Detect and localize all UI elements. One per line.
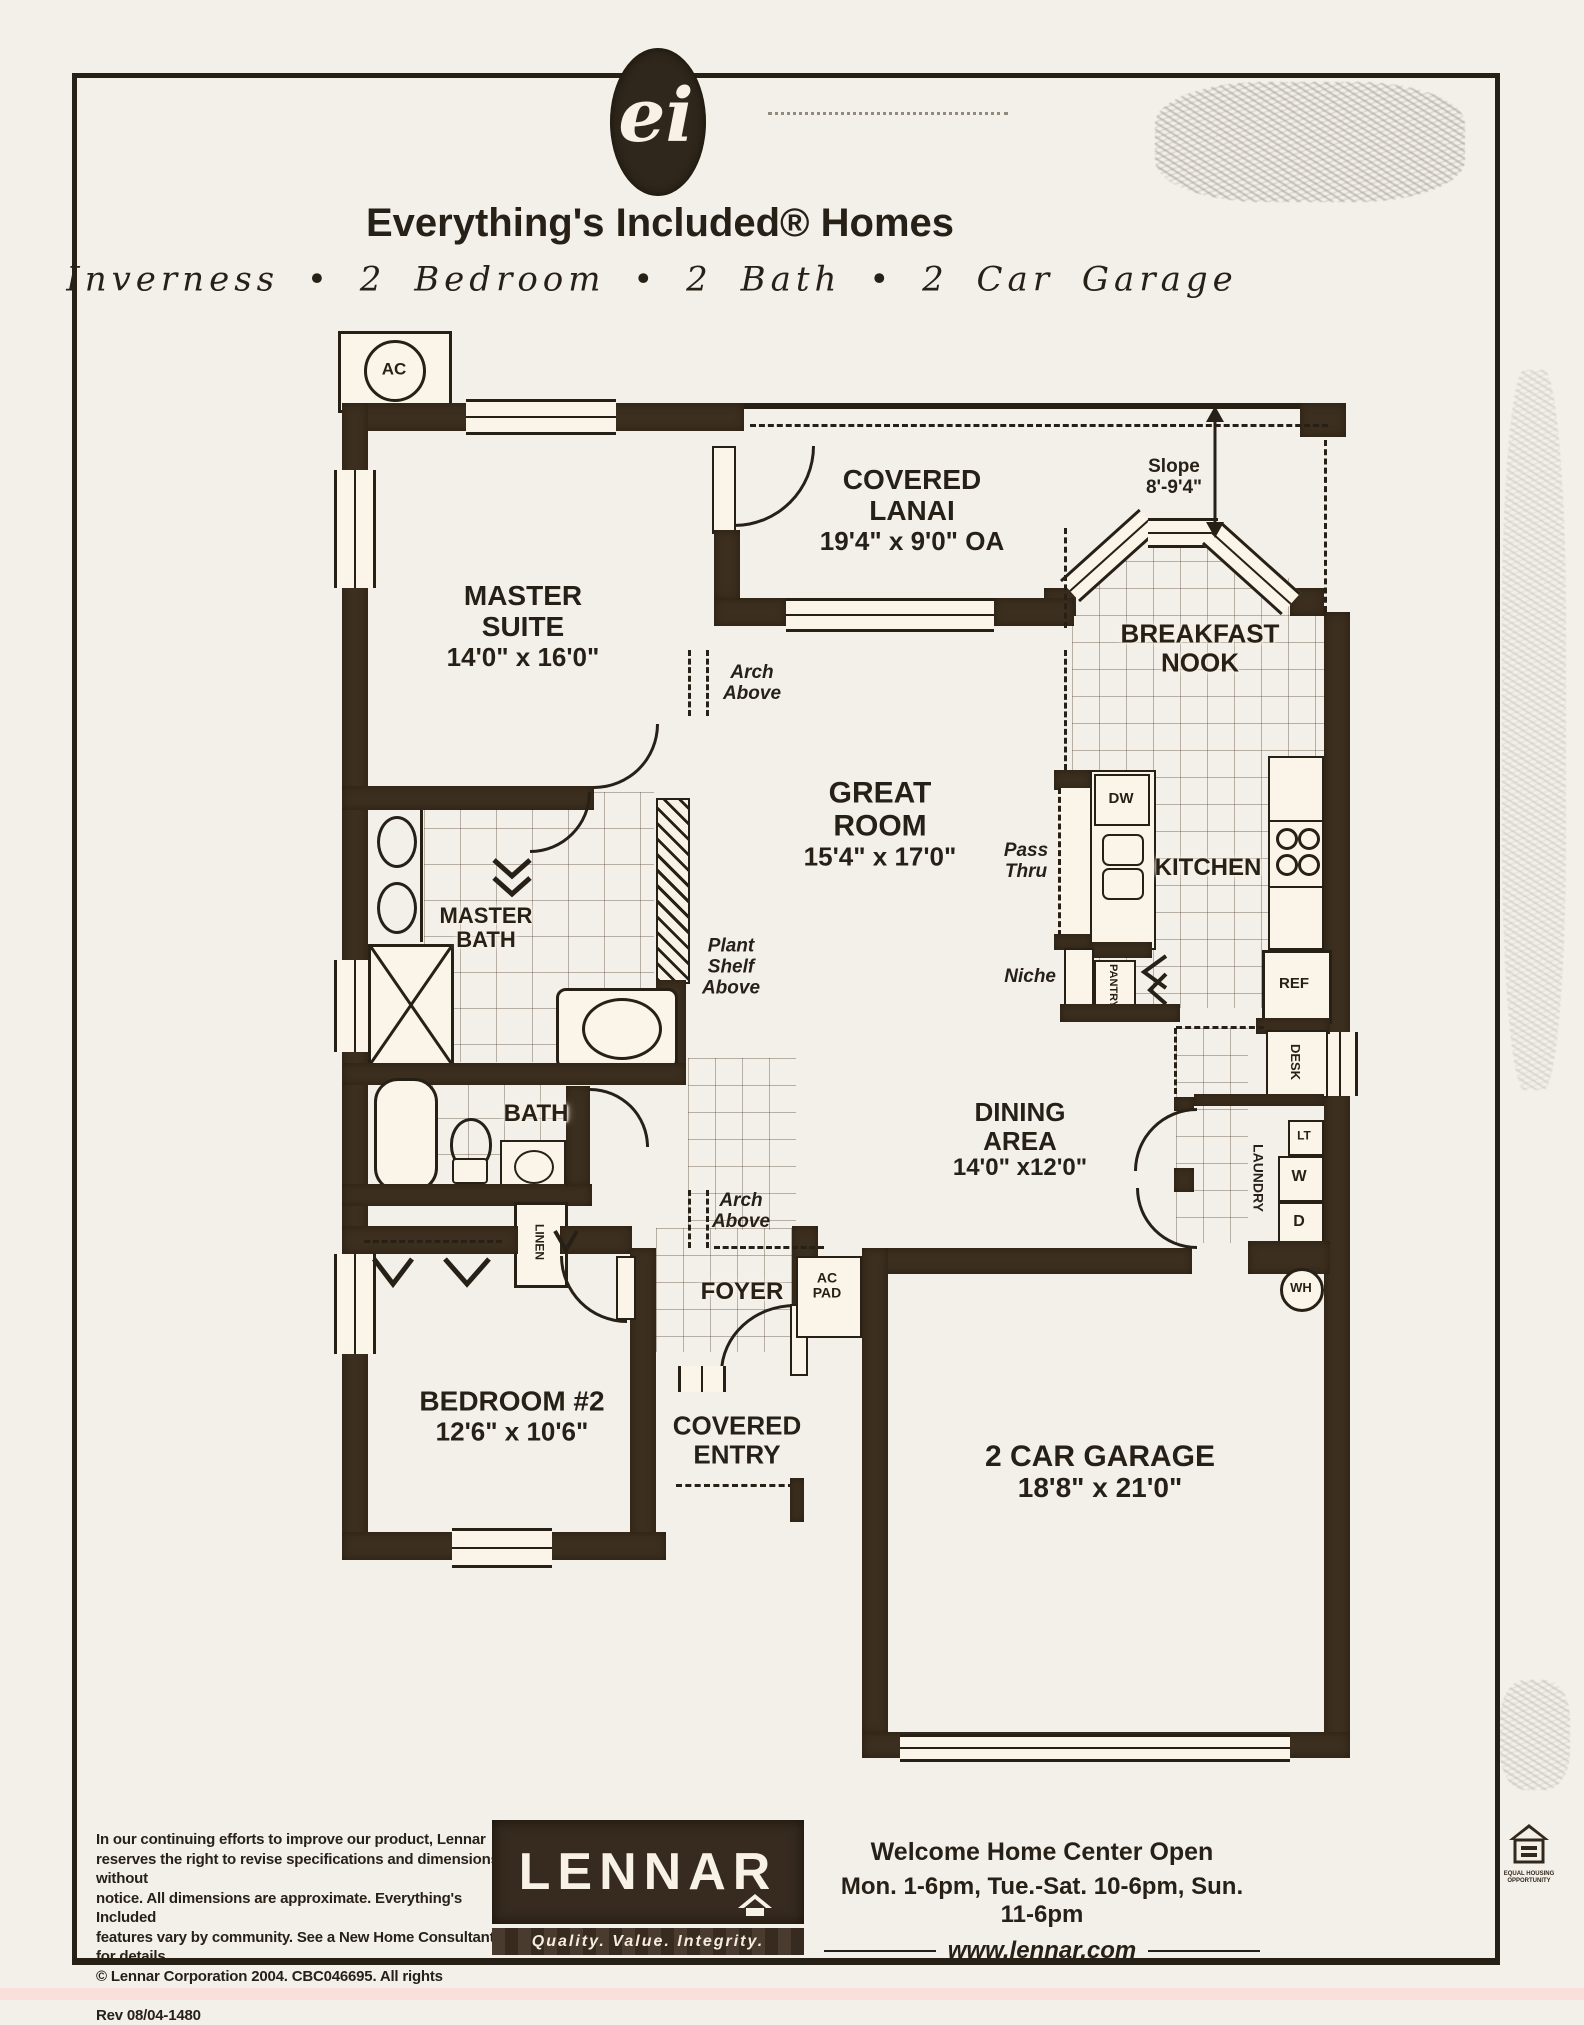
frame-border-top bbox=[72, 73, 1500, 78]
wall-corner-ne bbox=[1300, 403, 1346, 437]
room-name-line: MASTER bbox=[447, 581, 600, 612]
arch-dashed-1a bbox=[688, 650, 691, 716]
disclaimer-line: notice. All dimensions are approximate. … bbox=[96, 1889, 506, 1928]
bath-tub bbox=[374, 1078, 438, 1192]
room-label-breakfast-nook: BREAKFAST NOOK bbox=[1121, 619, 1280, 676]
room-name-line: AREA bbox=[953, 1127, 1087, 1156]
arch-dashed-2a bbox=[688, 1190, 691, 1248]
website-row: www.lennar.com bbox=[824, 1937, 1260, 1965]
kitchen-cabinet bbox=[1268, 886, 1324, 950]
room-name-line: GREAT bbox=[804, 777, 957, 810]
lennar-tagline-text: Quality. Value. Integrity. bbox=[532, 1933, 764, 1951]
wall-garage-left bbox=[862, 1248, 888, 1734]
room-label-bedroom2: BEDROOM #2 12'6" x 10'6" bbox=[419, 1386, 604, 1445]
kitchen-cabinet bbox=[1268, 756, 1324, 822]
washer-label: W bbox=[1291, 1168, 1306, 1186]
room-label-covered-lanai: COVERED LANAI 19'4" x 9'0" OA bbox=[820, 465, 1004, 555]
pass-thru-line2: Thru bbox=[1004, 862, 1048, 883]
room-label-master-suite: MASTER SUITE 14'0" x 16'0" bbox=[447, 581, 600, 671]
room-dims: 14'0" x12'0" bbox=[953, 1155, 1087, 1181]
room-name-line: COVERED bbox=[820, 465, 1004, 496]
slope-line2: 8'-9'4" bbox=[1146, 478, 1202, 499]
closet-hanger-icon bbox=[442, 1256, 492, 1288]
website-url: www.lennar.com bbox=[948, 1937, 1137, 1965]
dishwasher-label: DW bbox=[1109, 791, 1134, 808]
ac-pad-line2: PAD bbox=[813, 1286, 842, 1301]
ac-pad-line1: AC bbox=[813, 1271, 842, 1286]
lanai-roof-dashed bbox=[750, 424, 1328, 427]
burner-icon bbox=[1298, 854, 1320, 876]
disclaimer-line: reserves the right to revise specificati… bbox=[96, 1850, 506, 1889]
room-dims: 14'0" x 16'0" bbox=[447, 643, 600, 672]
room-label-foyer: FOYER bbox=[701, 1279, 784, 1305]
window-master-left bbox=[334, 470, 376, 588]
arch-dashed-1b bbox=[706, 650, 709, 716]
website-rule-right bbox=[1148, 1950, 1260, 1952]
room-label-great-room: GREAT ROOM 15'4" x 17'0" bbox=[804, 777, 957, 872]
water-heater-label: WH bbox=[1290, 1281, 1312, 1295]
closet-hanger-icon bbox=[371, 1256, 415, 1288]
niche-recess bbox=[1064, 948, 1094, 1008]
slope-arrow-icon bbox=[1198, 406, 1232, 538]
scan-noise bbox=[1502, 370, 1566, 1090]
pass-thru-annotation: Pass Thru bbox=[1004, 841, 1048, 883]
plant-shelf-line: Plant bbox=[702, 937, 760, 958]
arch-line2: Above bbox=[712, 1212, 770, 1233]
window-bedroom2-bottom bbox=[452, 1528, 552, 1568]
plant-shelf-annotation: Plant Shelf Above bbox=[702, 937, 760, 1000]
window-bedroom2-left bbox=[334, 1254, 376, 1354]
ac-unit-label: AC bbox=[382, 361, 407, 380]
lennar-logo-text: LENNAR bbox=[519, 1842, 778, 1902]
kitchen-sink-basin bbox=[1102, 868, 1144, 900]
closet-shelf-dashed bbox=[364, 1240, 502, 1243]
nook-dashed-edge bbox=[1064, 528, 1067, 628]
arch-line1: Arch bbox=[723, 663, 781, 684]
room-name-line: BATH bbox=[440, 928, 533, 952]
room-name-line: MASTER bbox=[440, 904, 533, 928]
door-arc-bath bbox=[590, 1088, 649, 1147]
wall-entry-right bbox=[790, 1478, 804, 1522]
equal-housing-text: EQUAL HOUSING OPPORTUNITY bbox=[1498, 1871, 1560, 1885]
ei-logo-icon: ei bbox=[610, 48, 706, 196]
arch-above-annotation-2: Arch Above bbox=[712, 1191, 770, 1233]
wall-laundry-top bbox=[1194, 1094, 1324, 1106]
toilet-tank bbox=[452, 1158, 488, 1184]
equal-housing-block: EQUAL HOUSING OPPORTUNITY bbox=[1498, 1822, 1560, 1885]
slope-line1: Slope bbox=[1146, 457, 1202, 478]
niche-label: Niche bbox=[996, 966, 1056, 988]
ac-pad-label: AC PAD bbox=[813, 1271, 842, 1302]
pantry-label: PANTRY bbox=[1107, 964, 1119, 1008]
room-label-garage: 2 CAR GARAGE 18'8" x 21'0" bbox=[985, 1440, 1215, 1504]
linen-label: LINEN bbox=[532, 1224, 545, 1260]
plant-shelf-line: Above bbox=[702, 978, 760, 999]
arch-above-annotation-1: Arch Above bbox=[723, 663, 781, 705]
kitchen-sink-basin bbox=[1102, 834, 1144, 866]
wall-greatroom-top-right bbox=[994, 598, 1074, 626]
door-leaf-lanai bbox=[712, 446, 736, 534]
room-label-covered-entry: COVERED ENTRY bbox=[673, 1411, 802, 1468]
lanai-roof-line bbox=[744, 403, 1334, 409]
room-name-line: SUITE bbox=[447, 612, 600, 643]
desk-label: DESK bbox=[1288, 1044, 1302, 1080]
hall-dashed-v bbox=[1174, 1028, 1177, 1094]
room-name-line: ROOM bbox=[804, 810, 957, 843]
scan-noise bbox=[1500, 1680, 1570, 1790]
door-arc-garage-entry bbox=[1136, 1188, 1197, 1249]
welcome-center-title: Welcome Home Center Open bbox=[824, 1838, 1260, 1867]
equal-housing-icon bbox=[1507, 1822, 1551, 1866]
room-dims: 12'6" x 10'6" bbox=[419, 1417, 604, 1446]
bath-sink-oval bbox=[514, 1150, 554, 1184]
patio-dashed-edge bbox=[1324, 440, 1327, 612]
entry-roof-dashed bbox=[676, 1484, 794, 1487]
website-rule-left bbox=[824, 1950, 936, 1952]
room-name-line: COVERED bbox=[673, 1411, 802, 1440]
room-name-line: LANAI bbox=[820, 496, 1004, 527]
sink-oval-1 bbox=[377, 816, 417, 868]
scanned-floor-plan-page: ei Everything's Included® Homes Invernes… bbox=[0, 0, 1584, 2000]
revision-line: Rev 08/04-1480 bbox=[96, 2006, 506, 2025]
page-title: Everything's Included® Homes bbox=[366, 201, 954, 245]
wall-greatroom-top-left bbox=[714, 598, 786, 626]
page-subtitle: Inverness • 2 Bedroom • 2 Bath • 2 Car G… bbox=[66, 261, 1237, 298]
welcome-center-hours: Mon. 1-6pm, Tue.-Sat. 10-6pm, Sun. 11-6p… bbox=[824, 1873, 1260, 1929]
door-arc-laundry bbox=[1134, 1108, 1197, 1171]
room-label-dining-area: DINING AREA 14'0" x12'0" bbox=[953, 1098, 1087, 1182]
shower-stall bbox=[368, 944, 454, 1066]
lennar-roof-icon bbox=[738, 1894, 772, 1918]
room-name-line: 2 CAR GARAGE bbox=[985, 1440, 1215, 1473]
room-name-line: NOOK bbox=[1121, 648, 1280, 677]
room-label-master-bath: MASTER BATH bbox=[440, 904, 533, 952]
wall-garage-top bbox=[862, 1248, 1192, 1274]
slope-annotation: Slope 8'-9'4" bbox=[1146, 457, 1202, 499]
plant-shelf-line: Shelf bbox=[702, 958, 760, 979]
wall-passthru-top bbox=[1054, 770, 1092, 790]
room-label-kitchen: KITCHEN bbox=[1155, 855, 1262, 881]
room-name-line: ENTRY bbox=[673, 1440, 802, 1469]
entry-step bbox=[678, 1366, 726, 1392]
room-dims: 15'4" x 17'0" bbox=[804, 843, 957, 872]
room-name-line: DINING bbox=[953, 1098, 1087, 1127]
ei-logo-text: ei bbox=[618, 73, 693, 159]
door-arc-lanai bbox=[734, 446, 815, 527]
wall-kitchen-bottom bbox=[1060, 1004, 1180, 1022]
garage-door bbox=[900, 1734, 1290, 1762]
window-master-top bbox=[466, 399, 616, 435]
scan-noise bbox=[1155, 82, 1465, 202]
pantry-door-icon bbox=[1136, 952, 1172, 1008]
pass-thru-counter bbox=[1058, 788, 1094, 936]
sink-oval-2 bbox=[377, 882, 417, 934]
scan-dotted-artifact bbox=[768, 112, 1008, 115]
garden-tub-oval bbox=[582, 998, 662, 1060]
wall-garage-top-right bbox=[1248, 1241, 1330, 1274]
hall-dashed-h bbox=[1176, 1026, 1264, 1029]
lennar-logo: LENNAR bbox=[492, 1820, 804, 1924]
laundry-tub-label: LT bbox=[1297, 1129, 1311, 1142]
room-name-line: BREAKFAST bbox=[1121, 619, 1280, 648]
burner-icon bbox=[1276, 828, 1298, 850]
wall-lanai-door-jamb bbox=[714, 530, 740, 600]
window-greatroom-sliders bbox=[786, 598, 994, 632]
welcome-center-block: Welcome Home Center Open Mon. 1-6pm, Tue… bbox=[824, 1838, 1260, 1965]
room-dims: 19'4" x 9'0" OA bbox=[820, 527, 1004, 556]
arch-dashed-2c bbox=[714, 1246, 824, 1249]
arch-dashed-2b bbox=[706, 1190, 709, 1248]
room-dims: 18'8" x 21'0" bbox=[985, 1473, 1215, 1504]
kitchen-dashed-edge bbox=[1064, 650, 1067, 770]
arch-line2: Above bbox=[723, 684, 781, 705]
shower-x-icon bbox=[371, 947, 451, 1063]
laundry-label: LAUNDRY bbox=[1250, 1144, 1265, 1212]
frame-border-left bbox=[72, 73, 77, 1965]
disclaimer-line: In our continuing efforts to improve our… bbox=[96, 1830, 506, 1850]
pass-thru-line1: Pass bbox=[1004, 841, 1048, 862]
closet-bifold-icon bbox=[490, 856, 536, 898]
room-name-line: BEDROOM #2 bbox=[419, 1386, 604, 1417]
arch-line1: Arch bbox=[712, 1191, 770, 1212]
burner-icon bbox=[1298, 828, 1320, 850]
frame-border-right bbox=[1495, 73, 1500, 1965]
door-arc-master bbox=[594, 724, 659, 789]
refrigerator-label: REF bbox=[1279, 976, 1309, 993]
wall-bath-right bbox=[566, 1086, 590, 1186]
room-label-bath: BATH bbox=[504, 1101, 569, 1127]
linen-door-icon bbox=[552, 1228, 580, 1254]
door-leaf-bedroom2 bbox=[616, 1256, 636, 1320]
lennar-tagline-band: Quality. Value. Integrity. bbox=[492, 1928, 804, 1955]
wall-right-exterior bbox=[1324, 612, 1350, 1758]
disclaimer-line: features vary by community. See a New Ho… bbox=[96, 1928, 506, 1967]
wall-plant-shelf-hatched bbox=[656, 798, 690, 984]
dryer-label: D bbox=[1293, 1213, 1305, 1231]
burner-icon bbox=[1276, 854, 1298, 876]
scan-edge-strip bbox=[0, 1988, 1584, 2000]
